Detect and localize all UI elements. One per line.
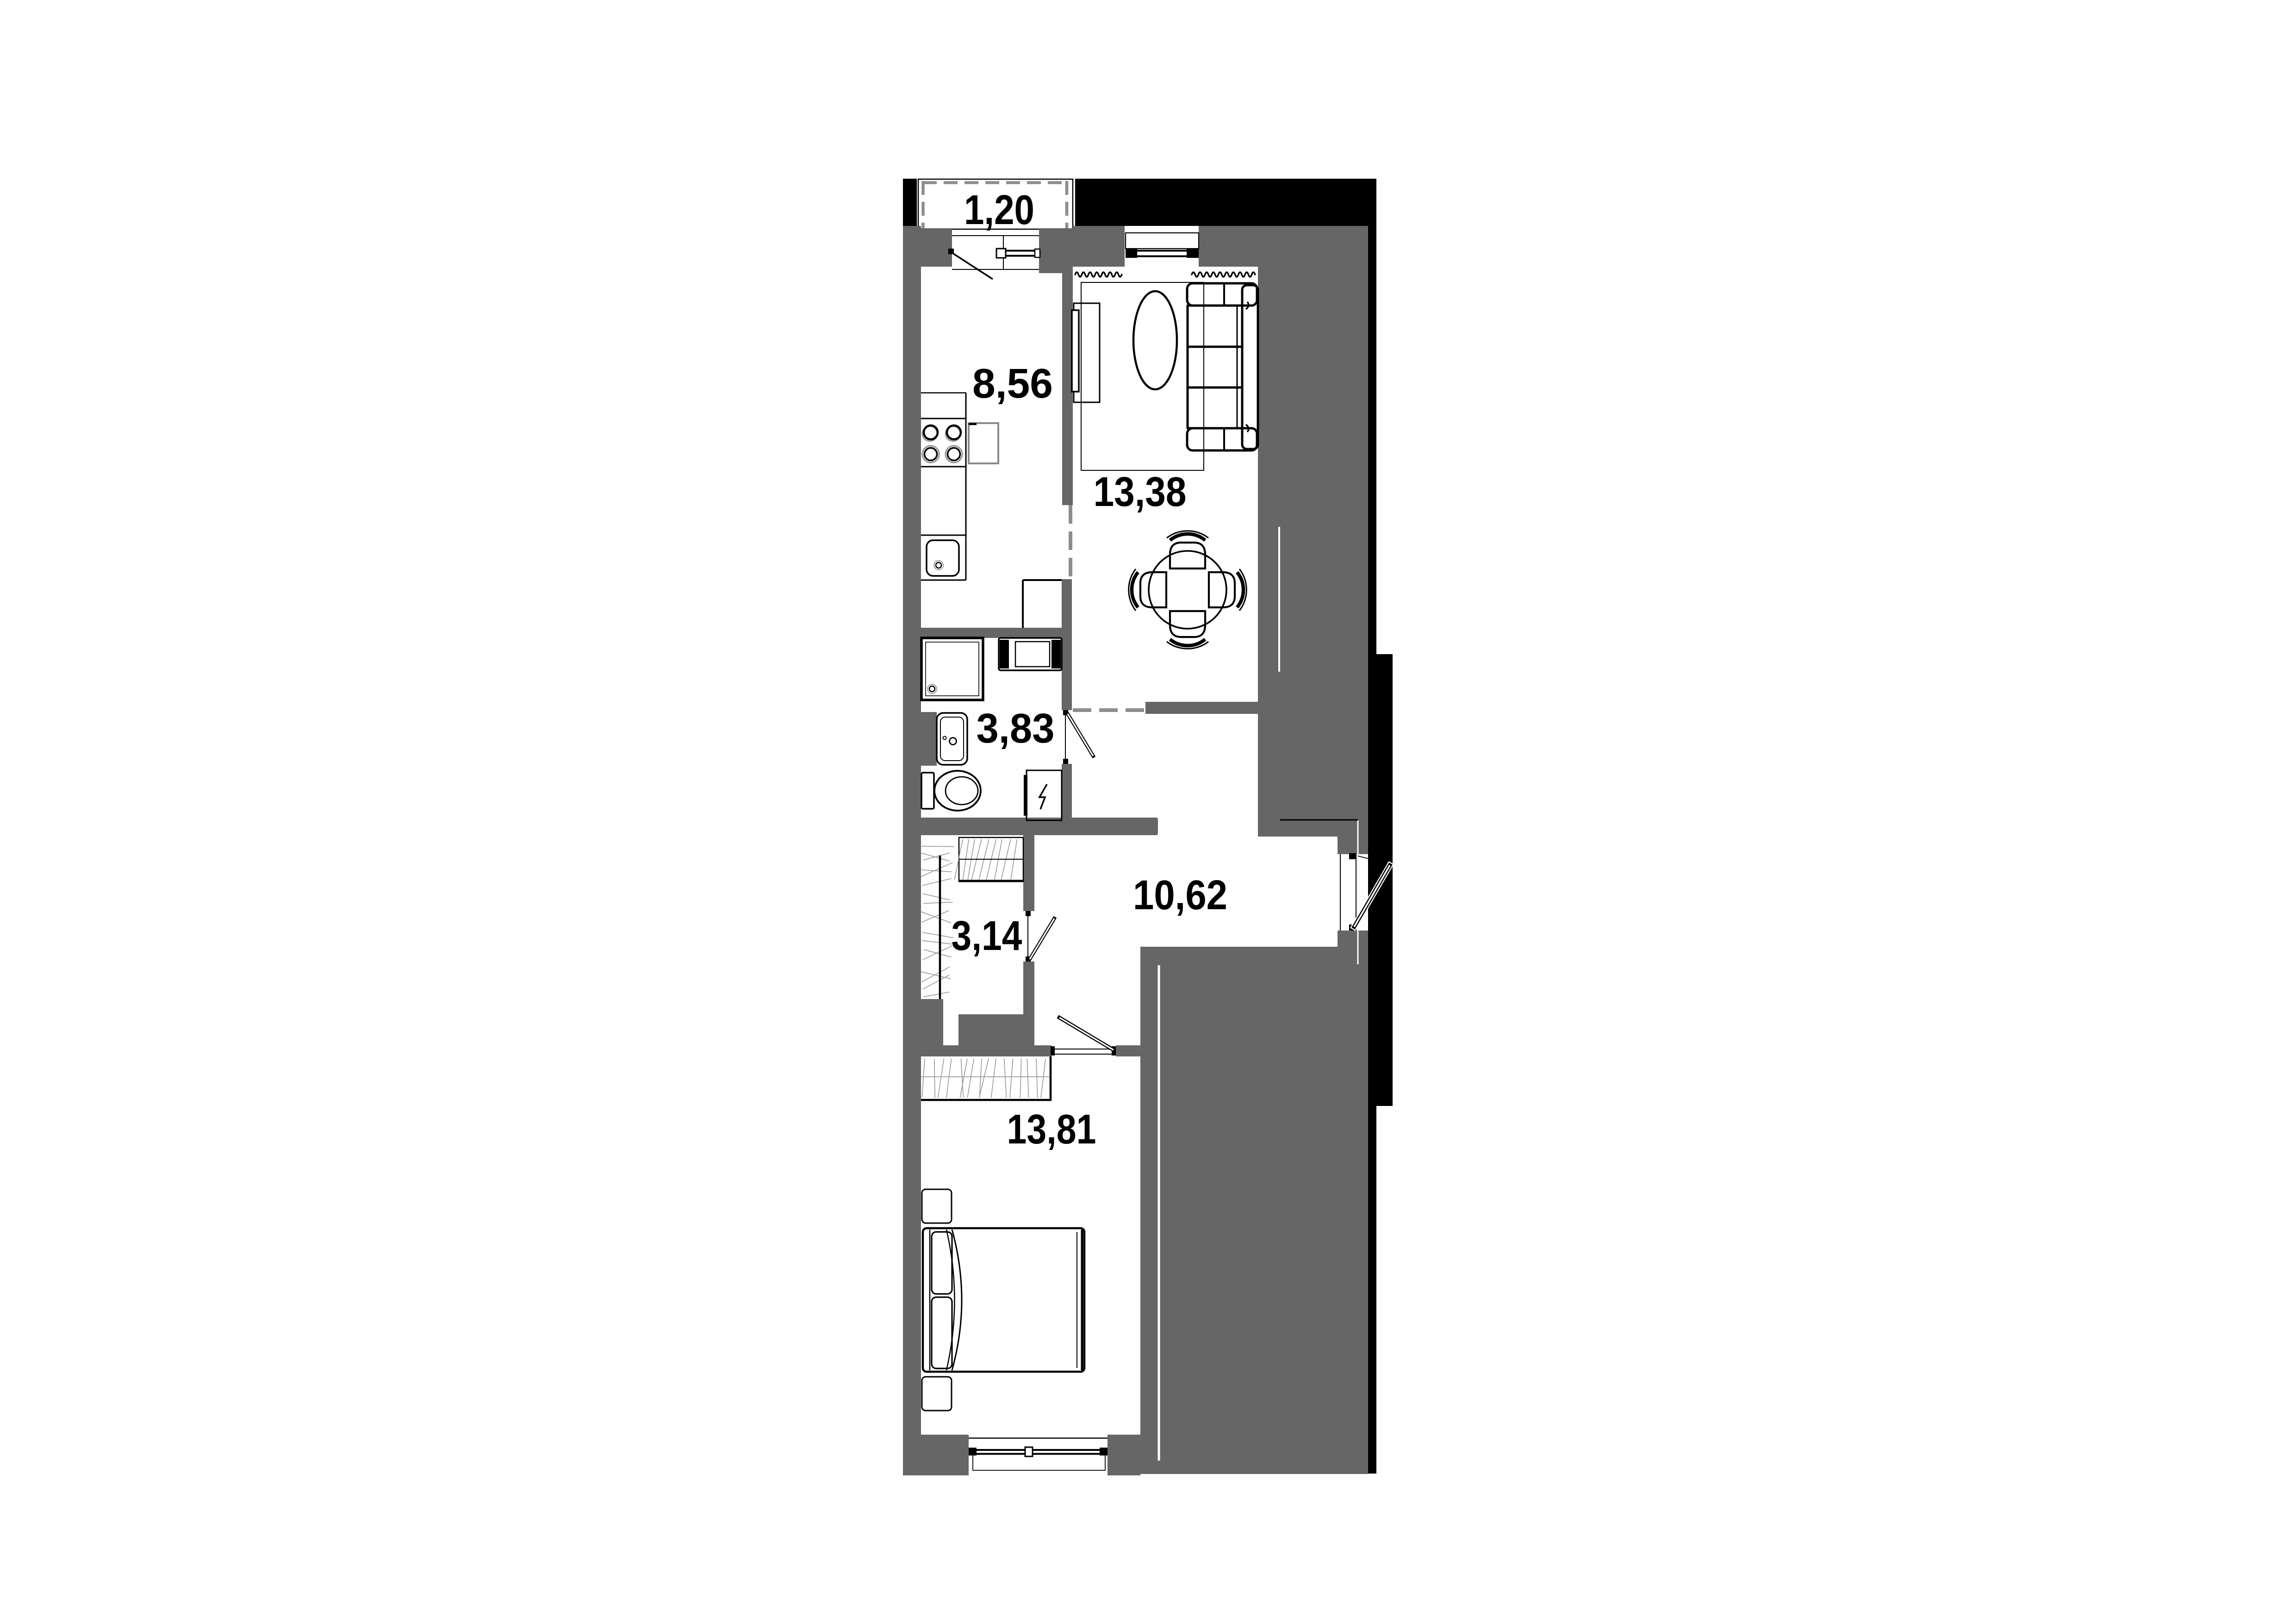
svg-text:10,62: 10,62 (1133, 872, 1227, 918)
svg-text:3,14: 3,14 (952, 913, 1022, 959)
svg-text:13,38: 13,38 (1094, 469, 1187, 515)
svg-text:3,83: 3,83 (977, 706, 1055, 752)
svg-text:1,20: 1,20 (964, 187, 1034, 233)
svg-text:8,56: 8,56 (972, 361, 1053, 407)
svg-text:13,81: 13,81 (1007, 1106, 1096, 1153)
